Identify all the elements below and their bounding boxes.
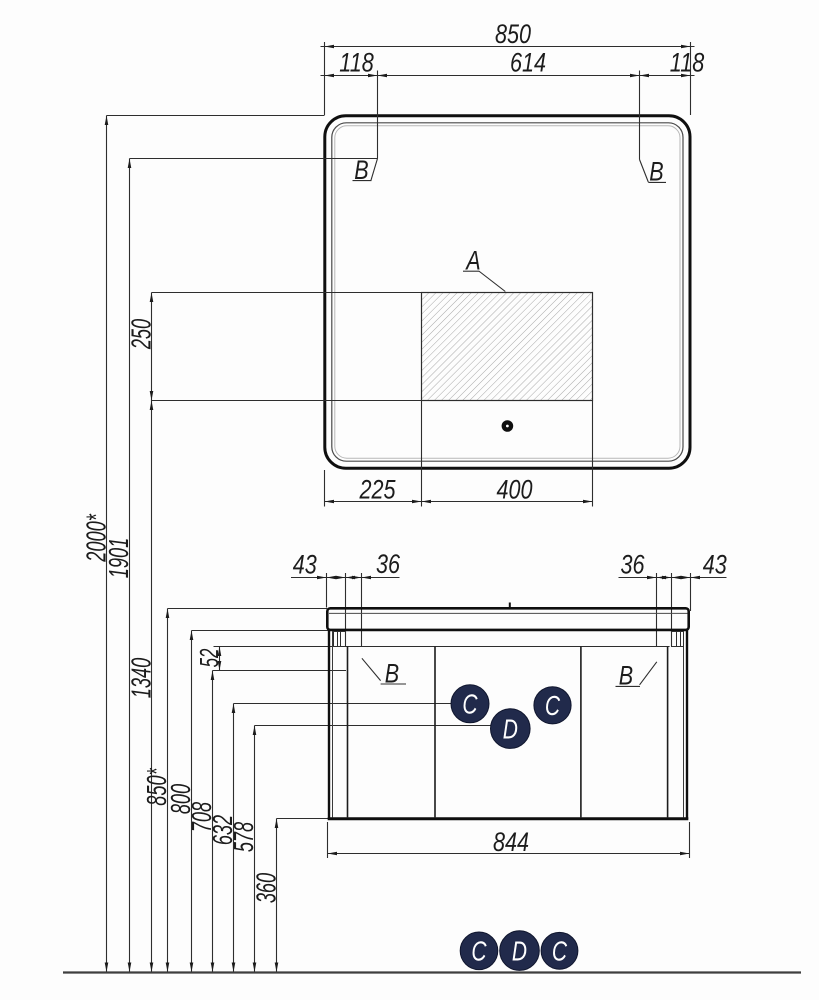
svg-text:52: 52: [194, 649, 224, 668]
svg-text:1901: 1901: [104, 538, 135, 578]
svg-text:36: 36: [620, 550, 644, 580]
svg-text:118: 118: [670, 48, 705, 78]
svg-text:C: C: [552, 937, 567, 968]
svg-text:360: 360: [252, 873, 283, 903]
svg-text:D: D: [503, 715, 518, 746]
svg-text:C: C: [471, 937, 486, 968]
svg-text:250: 250: [127, 319, 158, 350]
svg-text:1340: 1340: [127, 658, 158, 698]
svg-text:36: 36: [376, 550, 400, 580]
svg-text:118: 118: [339, 48, 374, 78]
svg-text:850: 850: [495, 20, 531, 50]
svg-text:B: B: [354, 156, 368, 186]
svg-text:225: 225: [359, 475, 396, 505]
svg-text:C: C: [545, 691, 560, 722]
svg-text:B: B: [385, 659, 399, 689]
svg-text:43: 43: [703, 550, 727, 580]
svg-text:844: 844: [493, 828, 529, 858]
svg-text:D: D: [512, 937, 527, 968]
svg-text:578: 578: [229, 822, 260, 852]
svg-text:43: 43: [293, 550, 317, 580]
svg-text:614: 614: [510, 48, 546, 78]
svg-text:C: C: [462, 690, 477, 721]
svg-text:B: B: [649, 157, 663, 187]
svg-text:A: A: [465, 246, 481, 276]
svg-text:B: B: [619, 661, 633, 691]
svg-text:400: 400: [496, 475, 532, 505]
